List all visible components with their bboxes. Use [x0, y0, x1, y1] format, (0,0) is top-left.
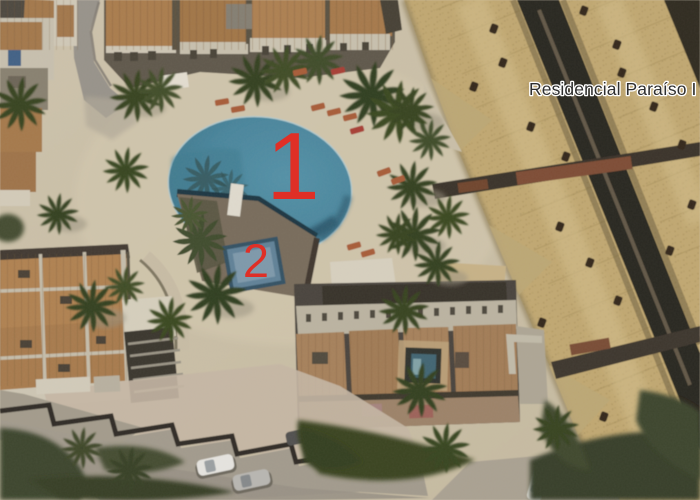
svg-text:2: 2 [243, 234, 269, 287]
svg-text:1: 1 [266, 113, 319, 220]
svg-text:Residencial Paraíso I: Residencial Paraíso I [529, 79, 696, 99]
